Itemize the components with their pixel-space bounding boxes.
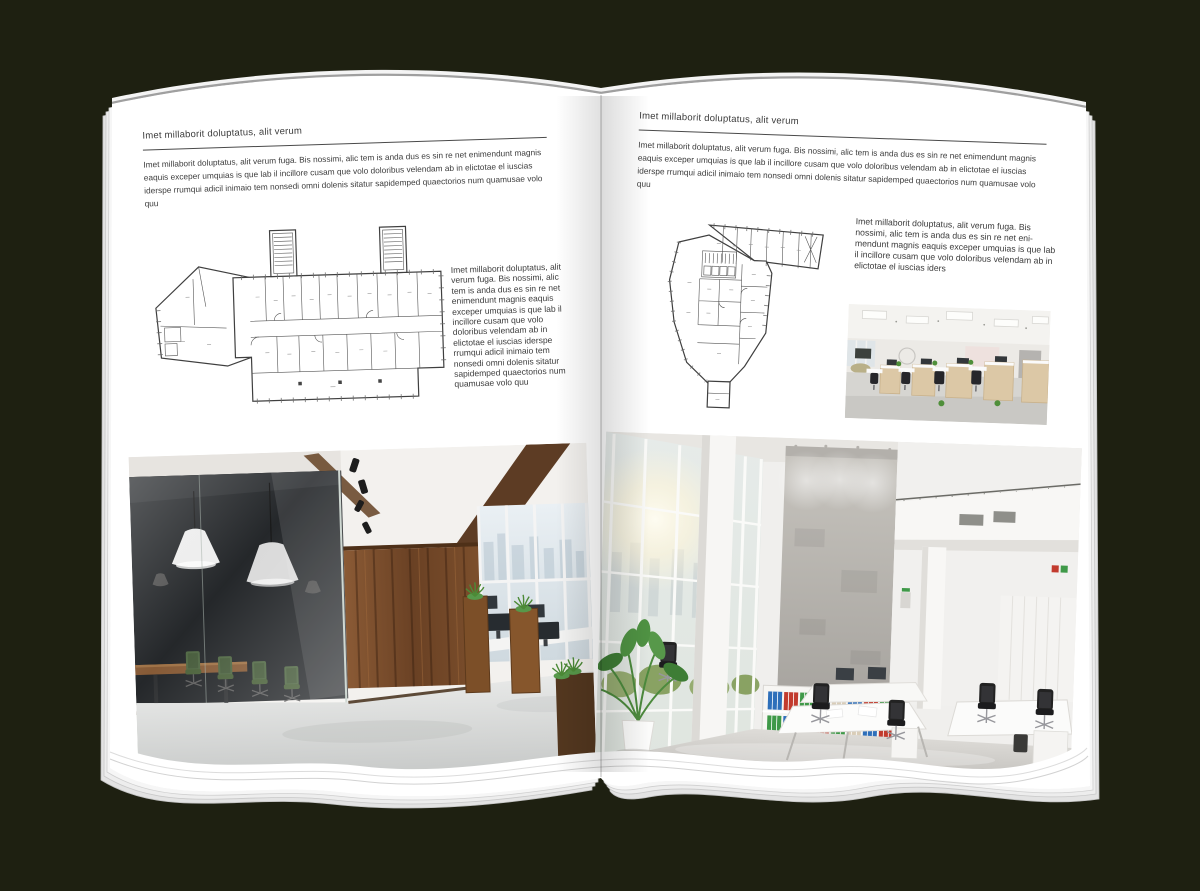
left-page-side-paragraph: Imet millaborit doluptatus, alit verum f… [451,261,569,389]
exit-sign [902,588,910,592]
left-page-header: Imet millaborit doluptatus, alit verum [142,126,302,142]
right-page-header: Imet millaborit doluptatus, alit verum [639,111,799,128]
left-page: Imet millaborit doluptatus, alit verum I… [118,93,597,779]
floorplan-tail [707,381,730,408]
air-vent [993,511,1015,523]
right-page-photo [595,432,1082,778]
desk-monitor [486,613,513,631]
right-page-side-paragraph: Imet millaborit doluptatus, alit verum f… [854,216,1060,278]
ceiling [848,304,1051,345]
waste-bin [1013,734,1028,752]
concrete-wall [769,446,903,694]
brochure-mockup-stage: Imet millaborit doluptatus, alit verum I… [0,0,1200,891]
safety-sign-red [1052,565,1059,572]
right-page-small-photo [845,304,1051,425]
left-page-intro-paragraph: Imet millaborit doluptatus, alit verum f… [143,146,556,211]
air-vent [959,514,983,526]
left-page-photo [129,443,597,779]
glazed-facade [595,432,768,767]
right-page: Imet millaborit doluptatus, alit verum I… [600,84,1094,800]
safety-sign-green [1061,566,1068,573]
floor-plan-right [649,211,848,416]
right-page-intro-paragraph: Imet millaborit doluptatus, alit verum f… [637,139,1053,205]
floor-plan-left [143,219,451,422]
timber-feature-wall [343,542,483,688]
